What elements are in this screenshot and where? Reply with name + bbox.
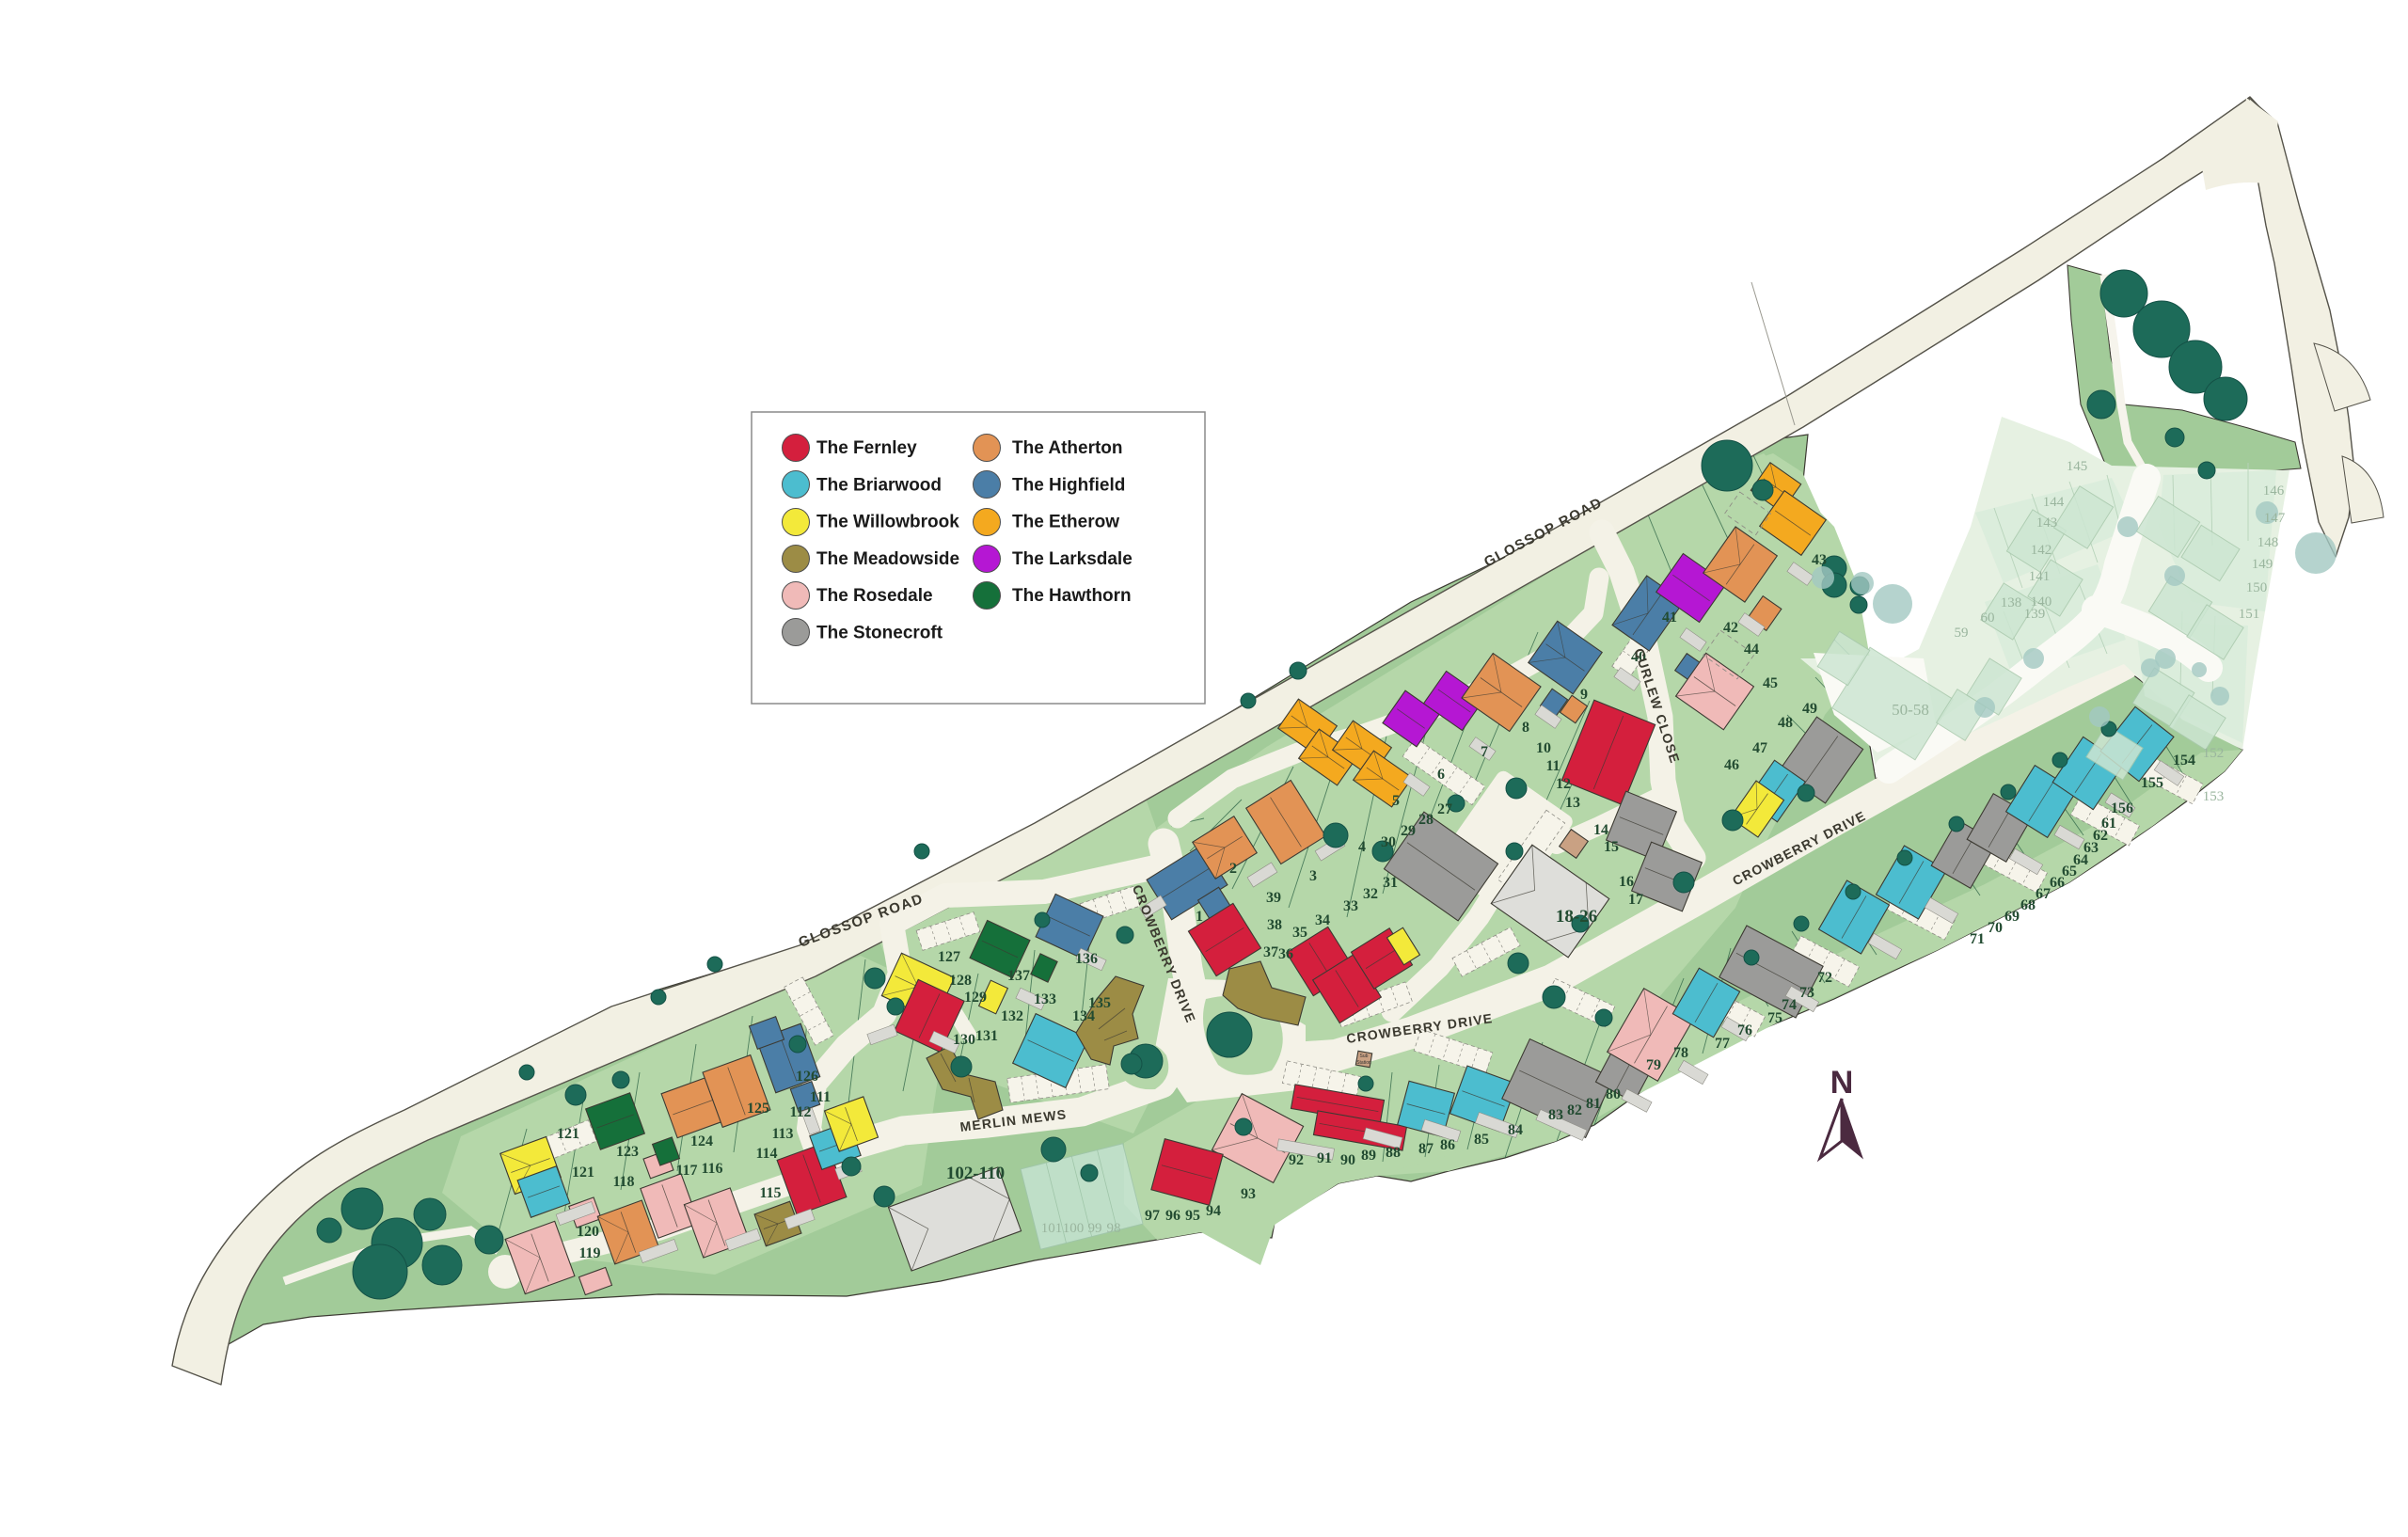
svg-text:100: 100	[1063, 1221, 1085, 1236]
svg-text:66: 66	[2050, 875, 2065, 891]
svg-text:115: 115	[759, 1185, 781, 1201]
svg-text:102-110: 102-110	[946, 1164, 1005, 1183]
svg-text:N: N	[1830, 1065, 1854, 1101]
svg-text:111: 111	[810, 1089, 831, 1105]
svg-text:71: 71	[1970, 931, 1985, 947]
svg-text:31: 31	[1383, 875, 1398, 891]
svg-text:83: 83	[1548, 1107, 1563, 1123]
svg-text:9: 9	[1580, 687, 1588, 703]
svg-text:13: 13	[1565, 795, 1580, 811]
svg-text:77: 77	[1715, 1036, 1730, 1052]
svg-text:49: 49	[1802, 701, 1817, 717]
svg-text:35: 35	[1292, 925, 1307, 941]
svg-text:155: 155	[2141, 775, 2163, 791]
svg-text:98: 98	[1107, 1221, 1121, 1236]
svg-text:114: 114	[755, 1146, 777, 1162]
svg-text:30: 30	[1381, 834, 1396, 850]
svg-text:The Larksdale: The Larksdale	[1012, 549, 1133, 569]
svg-text:86: 86	[1440, 1137, 1455, 1153]
svg-text:1: 1	[1196, 909, 1203, 925]
svg-text:139: 139	[2024, 607, 2046, 622]
svg-text:59: 59	[1955, 626, 1969, 641]
svg-text:12: 12	[1556, 776, 1571, 792]
svg-text:46: 46	[1724, 757, 1739, 773]
svg-text:97: 97	[1145, 1208, 1160, 1224]
svg-text:143: 143	[2036, 515, 2058, 531]
svg-text:142: 142	[2031, 543, 2052, 558]
svg-text:The Hawthorn: The Hawthorn	[1012, 586, 1132, 606]
svg-text:135: 135	[1088, 995, 1111, 1011]
svg-text:The Atherton: The Atherton	[1012, 438, 1123, 458]
svg-text:85: 85	[1474, 1132, 1489, 1148]
svg-text:39: 39	[1266, 890, 1281, 906]
svg-text:41: 41	[1662, 610, 1677, 626]
svg-text:6: 6	[1437, 767, 1445, 783]
svg-text:156: 156	[2111, 800, 2133, 816]
svg-text:72: 72	[1817, 970, 1832, 986]
svg-text:131: 131	[975, 1028, 998, 1044]
svg-text:48: 48	[1778, 715, 1793, 731]
svg-text:132: 132	[1001, 1008, 1023, 1024]
svg-text:150: 150	[2246, 580, 2268, 595]
svg-text:80: 80	[1606, 1086, 1621, 1102]
svg-text:34: 34	[1315, 912, 1330, 928]
svg-text:82: 82	[1567, 1102, 1582, 1118]
svg-text:17: 17	[1628, 892, 1643, 908]
svg-text:81: 81	[1586, 1096, 1601, 1112]
svg-text:29: 29	[1401, 823, 1416, 839]
svg-text:124: 124	[690, 1133, 713, 1149]
svg-text:141: 141	[2029, 569, 2051, 584]
svg-text:33: 33	[1343, 898, 1358, 914]
svg-text:15: 15	[1604, 839, 1619, 855]
svg-text:91: 91	[1317, 1150, 1332, 1166]
svg-text:152: 152	[2203, 746, 2225, 761]
svg-text:116: 116	[701, 1161, 722, 1177]
svg-text:Sub: Sub	[1360, 1054, 1369, 1059]
svg-text:89: 89	[1361, 1148, 1376, 1164]
svg-text:68: 68	[2020, 897, 2036, 913]
svg-text:126: 126	[796, 1069, 818, 1085]
svg-text:2: 2	[1229, 861, 1237, 877]
svg-text:The Etherow: The Etherow	[1012, 513, 1119, 532]
svg-text:73: 73	[1799, 985, 1814, 1001]
svg-text:137: 137	[1007, 968, 1030, 984]
svg-text:127: 127	[938, 949, 960, 965]
svg-text:44: 44	[1744, 642, 1759, 658]
svg-text:121: 121	[557, 1126, 579, 1142]
svg-text:Station: Station	[1356, 1060, 1371, 1066]
svg-text:138: 138	[2001, 595, 2022, 610]
svg-text:4: 4	[1358, 839, 1366, 855]
svg-text:121: 121	[572, 1165, 594, 1180]
svg-text:7: 7	[1481, 744, 1488, 760]
svg-text:96: 96	[1165, 1208, 1180, 1224]
svg-text:78: 78	[1673, 1045, 1688, 1061]
svg-text:146: 146	[2263, 483, 2285, 499]
svg-text:117: 117	[675, 1163, 697, 1179]
svg-text:50-58: 50-58	[1892, 701, 1929, 719]
svg-text:154: 154	[2173, 753, 2195, 768]
svg-text:153: 153	[2203, 789, 2225, 804]
svg-text:101: 101	[1041, 1221, 1063, 1236]
svg-text:145: 145	[2067, 459, 2088, 474]
svg-text:88: 88	[1386, 1145, 1401, 1161]
svg-text:The Meadowside: The Meadowside	[816, 549, 959, 569]
svg-text:112: 112	[789, 1104, 811, 1120]
svg-text:70: 70	[1988, 920, 2003, 936]
svg-text:16: 16	[1619, 874, 1634, 890]
svg-text:36: 36	[1278, 946, 1293, 962]
svg-text:43: 43	[1812, 552, 1827, 568]
svg-text:42: 42	[1723, 620, 1738, 636]
svg-text:95: 95	[1185, 1208, 1200, 1224]
svg-text:38: 38	[1267, 917, 1282, 933]
svg-text:The Fernley: The Fernley	[816, 438, 917, 458]
svg-text:133: 133	[1034, 991, 1056, 1007]
svg-text:120: 120	[577, 1224, 599, 1240]
svg-text:130: 130	[953, 1032, 975, 1048]
svg-text:10: 10	[1536, 740, 1551, 756]
svg-text:27: 27	[1437, 801, 1452, 817]
svg-text:84: 84	[1508, 1122, 1523, 1138]
svg-text:118: 118	[612, 1174, 634, 1190]
svg-text:149: 149	[2252, 557, 2273, 572]
svg-text:32: 32	[1363, 886, 1378, 902]
svg-text:123: 123	[616, 1144, 639, 1160]
svg-text:11: 11	[1545, 758, 1560, 774]
svg-text:99: 99	[1088, 1221, 1102, 1236]
svg-text:90: 90	[1340, 1152, 1355, 1168]
svg-text:28: 28	[1418, 812, 1434, 828]
svg-text:76: 76	[1737, 1022, 1752, 1038]
svg-text:74: 74	[1782, 997, 1797, 1013]
svg-text:47: 47	[1752, 740, 1767, 756]
svg-text:60: 60	[1981, 610, 1995, 626]
svg-text:The Rosedale: The Rosedale	[816, 586, 933, 606]
svg-text:94: 94	[1206, 1203, 1221, 1219]
svg-text:The Highfield: The Highfield	[1012, 475, 1125, 495]
svg-text:75: 75	[1767, 1010, 1782, 1026]
svg-text:92: 92	[1289, 1152, 1304, 1168]
svg-text:136: 136	[1075, 951, 1098, 967]
svg-text:119: 119	[578, 1245, 600, 1261]
svg-text:129: 129	[964, 990, 987, 1006]
svg-text:37: 37	[1263, 944, 1278, 960]
svg-text:147: 147	[2264, 511, 2286, 526]
svg-text:5: 5	[1392, 793, 1400, 809]
svg-text:87: 87	[1418, 1141, 1434, 1157]
svg-text:144: 144	[2043, 495, 2065, 510]
svg-text:The Stonecroft: The Stonecroft	[816, 624, 943, 643]
svg-text:18-26: 18-26	[1556, 907, 1597, 927]
svg-text:The Willowbrook: The Willowbrook	[816, 513, 959, 532]
svg-text:8: 8	[1522, 720, 1529, 736]
svg-text:The Briarwood: The Briarwood	[816, 475, 942, 495]
svg-text:3: 3	[1309, 868, 1317, 884]
svg-text:128: 128	[949, 973, 972, 989]
svg-text:45: 45	[1763, 675, 1778, 691]
svg-text:79: 79	[1646, 1057, 1661, 1073]
svg-text:69: 69	[2004, 909, 2020, 925]
svg-text:67: 67	[2036, 886, 2051, 902]
svg-text:93: 93	[1241, 1186, 1256, 1202]
svg-text:151: 151	[2239, 607, 2260, 622]
svg-text:148: 148	[2257, 535, 2279, 550]
svg-text:125: 125	[747, 1101, 769, 1117]
svg-text:14: 14	[1593, 822, 1608, 838]
svg-text:113: 113	[771, 1126, 793, 1142]
